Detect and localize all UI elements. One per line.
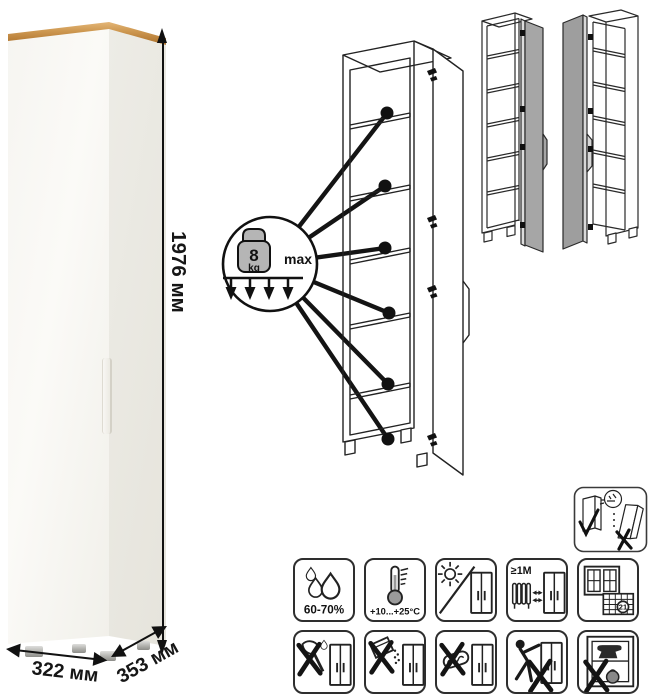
door-handle-notch <box>463 281 469 343</box>
height-dimension-label: 1976 мм <box>164 202 190 342</box>
temperature-label: +10...+25°C <box>370 606 420 616</box>
no-direct-sunlight-icon <box>435 558 497 622</box>
gray-door <box>525 21 543 252</box>
no-dragging-icon <box>506 630 568 694</box>
variant-door-hinged-right <box>477 6 551 256</box>
load-max-label: max <box>284 251 312 267</box>
anchor-to-wall-icon <box>573 486 648 553</box>
powder-dots <box>394 650 400 665</box>
door-handle-notch <box>587 134 592 172</box>
no-overload-icon <box>577 630 639 694</box>
foot <box>608 233 616 244</box>
foot <box>629 227 637 238</box>
shelf-dot <box>379 107 396 446</box>
load-unit: kg <box>248 263 260 274</box>
shelf <box>487 50 519 196</box>
no-scouring-pad-icon <box>435 630 497 694</box>
weight-icon: 8 kg <box>238 229 270 274</box>
humidity-icon: 60-70% <box>293 558 355 622</box>
gray-door <box>563 15 583 249</box>
water-drops-icon <box>306 568 339 599</box>
airing-days-label: 21 <box>619 603 627 612</box>
cabinet-front-door <box>8 20 109 644</box>
heat-source-distance-icon: ≥1М <box>506 558 568 622</box>
distance-label: ≥1М <box>511 565 532 577</box>
radiator-icon <box>513 583 531 608</box>
heat-lines <box>401 568 408 584</box>
product-sheet: 1976 мм 322 мм 353 мм <box>0 0 648 700</box>
door-handle-groove <box>102 358 112 434</box>
hinge-icon <box>588 34 593 230</box>
thermometer-icon <box>388 567 402 605</box>
open-cabinet-outline <box>343 41 469 475</box>
arrow-up-icon <box>157 28 167 43</box>
person-icon <box>516 640 539 681</box>
no-abrasive-powder-icon <box>364 630 426 694</box>
no-sharp-tools-icon <box>293 630 355 694</box>
shelf-load-diagram: 8 kg max <box>205 15 480 495</box>
sun-icon <box>438 562 462 586</box>
foot <box>417 453 427 467</box>
care-icon-grid: 60-70% +10...+25°C <box>293 558 639 694</box>
cabinet-side-panel <box>109 20 166 648</box>
double-arrow-icon <box>532 591 542 603</box>
open-door <box>433 49 463 475</box>
kettlebell-icon <box>607 670 619 683</box>
temperature-icon: +10...+25°C <box>364 558 426 622</box>
foot <box>345 440 355 455</box>
open-window-icon <box>585 567 620 595</box>
foot <box>484 231 492 242</box>
foot <box>401 428 411 443</box>
humidity-label: 60-70% <box>304 603 345 616</box>
door-handle-notch <box>543 134 547 170</box>
shelf <box>593 48 625 194</box>
variant-door-hinged-left <box>559 4 643 256</box>
magnifier-icon <box>605 491 622 508</box>
calendar-icon: 21 <box>603 594 633 615</box>
product-photo <box>8 20 166 668</box>
load-limit-badge: 8 kg max <box>223 217 317 311</box>
ventilation-days-icon: 21 <box>577 558 639 622</box>
foot <box>507 226 515 237</box>
